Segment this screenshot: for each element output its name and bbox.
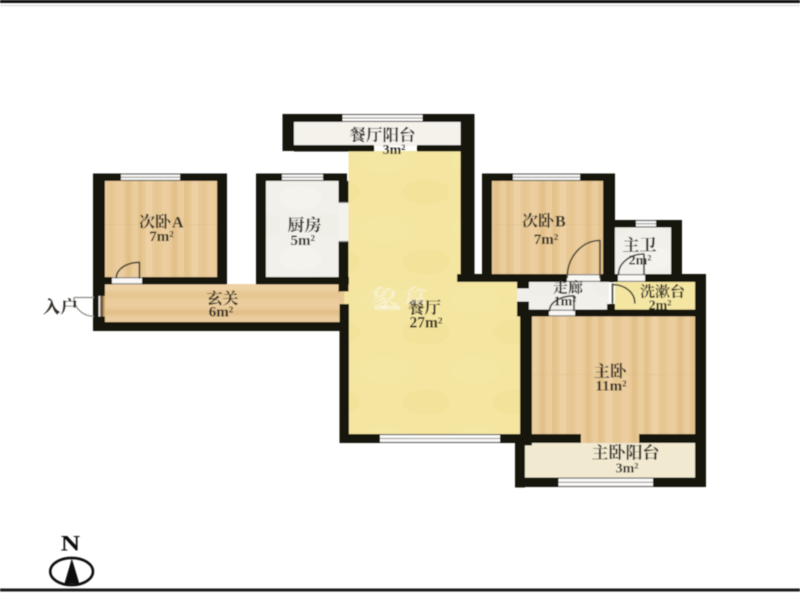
svg-text:6m²: 6m²: [209, 304, 234, 320]
svg-text:2m²: 2m²: [649, 298, 672, 313]
svg-text:N: N: [61, 532, 81, 556]
svg-text:5m²: 5m²: [291, 233, 316, 249]
svg-text:11m²: 11m²: [595, 378, 627, 394]
svg-text:1m²: 1m²: [554, 295, 577, 310]
svg-text:27m²: 27m²: [409, 314, 442, 331]
svg-text:3m²: 3m²: [383, 143, 406, 158]
svg-text:7m²: 7m²: [149, 229, 174, 245]
svg-text:2m²: 2m²: [629, 253, 652, 268]
svg-text:7m²: 7m²: [534, 232, 559, 248]
svg-text:3m²: 3m²: [616, 461, 639, 476]
svg-text:B: B: [555, 214, 566, 231]
svg-text:A: A: [172, 215, 184, 232]
